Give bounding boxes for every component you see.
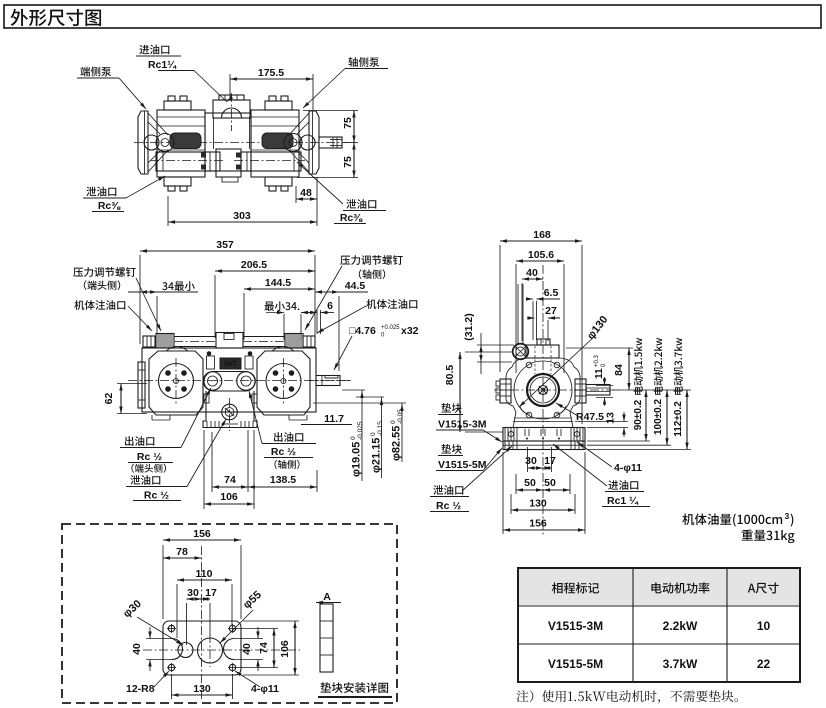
svg-text:40: 40 <box>131 643 143 655</box>
svg-text:112±0.2: 112±0.2 <box>673 401 684 437</box>
svg-text:84: 84 <box>613 364 625 376</box>
svg-text:0: 0 <box>350 436 357 440</box>
svg-text:50: 50 <box>524 477 536 489</box>
svg-text:V1515-3M: V1515-3M <box>438 419 487 431</box>
svg-text:(31.2): (31.2) <box>463 313 475 340</box>
svg-text:-0.05: -0.05 <box>397 409 404 424</box>
svg-text:φ19.05: φ19.05 <box>351 442 363 477</box>
svg-text:Rc ½: Rc ½ <box>271 446 296 458</box>
svg-text:3: 3 <box>785 511 790 521</box>
svg-text:V1515-5M: V1515-5M <box>438 459 487 471</box>
svg-text:Rc1 ¼: Rc1 ¼ <box>607 495 639 507</box>
svg-text:12-R8: 12-R8 <box>126 683 155 695</box>
svg-text:100±0.2: 100±0.2 <box>653 399 664 436</box>
svg-text:110: 110 <box>196 568 213 580</box>
svg-text:Rc ½: Rc ½ <box>137 451 162 463</box>
svg-text:130: 130 <box>529 498 547 510</box>
svg-text:130: 130 <box>193 683 211 695</box>
svg-text:144.5: 144.5 <box>265 277 291 289</box>
svg-text:A: A <box>323 591 331 603</box>
svg-text:Rc⅜: Rc⅜ <box>340 212 363 224</box>
svg-text:4-φ11: 4-φ11 <box>251 683 279 695</box>
svg-text:□4.76: □4.76 <box>349 325 376 337</box>
svg-text:106: 106 <box>279 640 291 658</box>
svg-text:17: 17 <box>205 587 217 599</box>
svg-text:175.5: 175.5 <box>258 67 284 79</box>
svg-text:φ55: φ55 <box>241 589 264 611</box>
svg-text:6.5: 6.5 <box>544 287 559 299</box>
svg-text:11.7: 11.7 <box>324 413 344 425</box>
svg-text:13: 13 <box>605 412 617 424</box>
svg-text:Rc1¼: Rc1¼ <box>148 59 177 71</box>
svg-text:φ30: φ30 <box>121 598 144 620</box>
svg-text:156: 156 <box>193 528 211 540</box>
svg-text:30: 30 <box>187 587 199 599</box>
svg-text:106: 106 <box>220 491 238 503</box>
svg-text:-0.025: -0.025 <box>357 421 364 440</box>
svg-text:75: 75 <box>342 156 354 168</box>
svg-text:62: 62 <box>103 393 115 405</box>
svg-text:φ130: φ130 <box>585 314 611 342</box>
svg-text:156: 156 <box>529 518 547 530</box>
svg-text:74: 74 <box>224 474 236 486</box>
svg-text:168: 168 <box>533 229 551 241</box>
svg-text:40: 40 <box>526 267 538 279</box>
svg-text:+0.025: +0.025 <box>381 325 400 331</box>
svg-text:0: 0 <box>381 333 385 339</box>
svg-text:Rc ½: Rc ½ <box>436 500 461 512</box>
svg-text:357: 357 <box>216 239 234 251</box>
svg-text:4-φ11: 4-φ11 <box>614 462 642 474</box>
svg-text:303: 303 <box>233 210 251 222</box>
svg-text:90±0.2: 90±0.2 <box>633 399 644 430</box>
svg-text:40: 40 <box>241 643 253 655</box>
svg-text:48: 48 <box>300 187 312 199</box>
svg-text:6: 6 <box>327 300 333 312</box>
svg-text:17: 17 <box>544 455 556 467</box>
svg-text:3.7kW: 3.7kW <box>663 657 698 671</box>
svg-text:78: 78 <box>176 546 188 558</box>
svg-text:50: 50 <box>544 477 556 489</box>
svg-text:φ82.55: φ82.55 <box>391 426 403 461</box>
svg-text:Rc⅜: Rc⅜ <box>98 200 121 212</box>
svg-text:138.5: 138.5 <box>270 474 296 486</box>
svg-text:0: 0 <box>390 420 397 424</box>
svg-text:10: 10 <box>757 619 771 633</box>
svg-text:Rc ½: Rc ½ <box>144 490 169 502</box>
svg-text:-0.15: -0.15 <box>377 421 384 436</box>
svg-text:+0.3: +0.3 <box>594 354 600 367</box>
svg-text:206.5: 206.5 <box>241 259 267 271</box>
svg-text:80.5: 80.5 <box>444 365 456 386</box>
svg-text:0οT: 0οT <box>224 361 237 368</box>
svg-text:74: 74 <box>258 642 270 654</box>
svg-text:V1515-3M: V1515-3M <box>548 619 603 633</box>
svg-text:30: 30 <box>525 455 537 467</box>
svg-text:0: 0 <box>601 363 607 367</box>
svg-text:44.5: 44.5 <box>345 280 366 292</box>
svg-text:x32: x32 <box>401 325 419 337</box>
svg-text:φ21.15: φ21.15 <box>371 438 383 473</box>
svg-text:V1515-5M: V1515-5M <box>548 657 603 671</box>
svg-text:11: 11 <box>594 368 605 379</box>
svg-text:27: 27 <box>545 305 557 317</box>
svg-text:75: 75 <box>342 117 354 129</box>
svg-text:0: 0 <box>370 432 377 436</box>
svg-text:105.6: 105.6 <box>528 249 554 261</box>
svg-text:22: 22 <box>757 657 771 671</box>
svg-text:2.2kW: 2.2kW <box>663 619 698 633</box>
